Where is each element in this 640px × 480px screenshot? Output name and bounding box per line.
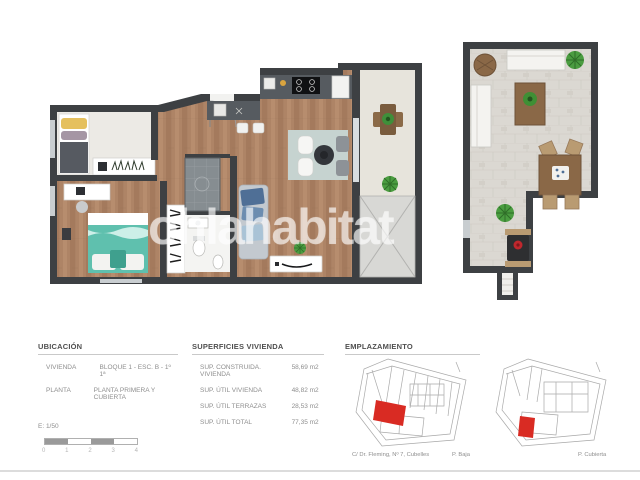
row-label: PLANTA: [38, 387, 94, 401]
sink: [188, 218, 208, 228]
siteplan-baja-label: P. Baja: [452, 452, 470, 458]
bathroom: [185, 215, 230, 272]
ubicacion-row: VIVIENDA BLOQUE 1 - ESC. B - 1º 1ª: [38, 364, 178, 378]
bottom-divider: [0, 470, 640, 472]
scale-tick: 2: [88, 448, 91, 454]
ubicacion-row: PLANTA PLANTA PRIMERA Y CUBIERTA: [38, 387, 178, 401]
row-value: 77,35 m2: [292, 419, 324, 426]
fridge: [332, 76, 349, 98]
wardrobe: [167, 205, 185, 273]
scale-seg: [45, 439, 68, 444]
divider: [192, 354, 324, 355]
superficie-row: SUP. ÚTIL VIVIENDA 48,82 m2: [192, 387, 324, 394]
bedroom-1: [57, 112, 155, 177]
superficie-row: SUP. ÚTIL TOTAL 77,35 m2: [192, 419, 324, 426]
fruit-bowl: [280, 80, 286, 86]
kitchen-sink: [264, 78, 275, 89]
row-label: SUP. ÚTIL VIVIENDA: [192, 387, 292, 394]
scale-seg: [68, 439, 91, 444]
ubicacion-section: UBICACIÓN VIVIENDA BLOQUE 1 - ESC. B - 1…: [38, 342, 178, 454]
divider: [345, 354, 480, 355]
row-label: SUP. ÚTIL TOTAL: [192, 419, 292, 426]
scale-tick: 0: [42, 448, 45, 454]
coffee-table: [515, 83, 545, 125]
siteplan-cubierta-label: P. Cubierta: [578, 452, 606, 458]
superficie-row: SUP. CONSTRUIDA. VIVIENDA 58,69 m2: [192, 364, 324, 378]
plant-icon: [294, 242, 306, 254]
terrace: [353, 70, 415, 277]
main-floorplan: [38, 58, 430, 290]
ubicacion-title: UBICACIÓN: [38, 342, 178, 351]
row-label: SUP. ÚTIL TERRAZAS: [192, 403, 292, 410]
row-label: SUP. CONSTRUIDA. VIVIENDA: [192, 364, 292, 378]
outdoor-sofa-top: [507, 50, 565, 70]
superficies-title: SUPERFICIES VIVIENDA: [192, 342, 324, 351]
scale-tick: 3: [111, 448, 114, 454]
bidet: [213, 255, 223, 269]
terrace-plant-icon: [382, 176, 398, 192]
toilet: [193, 236, 205, 256]
scale-seg: [114, 439, 137, 444]
emplazamiento-section: EMPLAZAMIENTO: [345, 342, 625, 355]
row-value: 28,53 m2: [292, 403, 324, 410]
single-bed: [59, 114, 89, 174]
tv-console: [270, 256, 322, 272]
emplazamiento-title: EMPLAZAMIENTO: [345, 342, 625, 351]
plant-icon: [496, 204, 514, 222]
superficies-section: SUPERFICIES VIVIENDA SUP. CONSTRUIDA. VI…: [192, 342, 324, 426]
scale-ticks: 0 1 2 3 4: [42, 448, 138, 454]
row-value: BLOQUE 1 - ESC. B - 1º 1ª: [100, 364, 178, 378]
siteplan-baja: [352, 356, 474, 452]
sliding-door: [353, 118, 359, 182]
outdoor-sofa-left: [471, 85, 491, 147]
shower: [185, 158, 220, 211]
appliance: [214, 104, 226, 116]
divider: [38, 354, 178, 355]
row-value: PLANTA PRIMERA Y CUBIERTA: [94, 387, 178, 401]
floorplan-sheet: { "watermark": "ohlahabitat", "ubicacion…: [0, 0, 640, 480]
scale-tick: 4: [135, 448, 138, 454]
cooktop: [292, 77, 320, 94]
round-side-table: [474, 54, 496, 76]
row-value: 58,69 m2: [292, 364, 324, 378]
bbq-grill: [505, 229, 531, 267]
double-bed: [88, 213, 148, 273]
row-label: VIVIENDA: [38, 364, 100, 378]
scale-tick: 1: [65, 448, 68, 454]
scale-seg: [91, 439, 114, 444]
scale-bar: [44, 438, 138, 445]
stair-access: [502, 273, 513, 295]
siteplan-cubierta: [492, 356, 614, 452]
console-plants: [93, 158, 155, 175]
wall-picture: [62, 228, 71, 240]
row-value: 48,82 m2: [292, 387, 324, 394]
roof-door: [463, 220, 470, 238]
superficie-row: SUP. ÚTIL TERRAZAS 28,53 m2: [192, 403, 324, 410]
sofa: [239, 185, 268, 259]
scale-label: E: 1/50: [38, 423, 178, 430]
highlighted-unit: [518, 416, 535, 438]
siteplan-address: C/ Dr. Fleming, Nº 7, Cubelles: [352, 452, 429, 458]
plant-icon: [566, 51, 584, 69]
roof-terrace-plan: [455, 35, 605, 315]
